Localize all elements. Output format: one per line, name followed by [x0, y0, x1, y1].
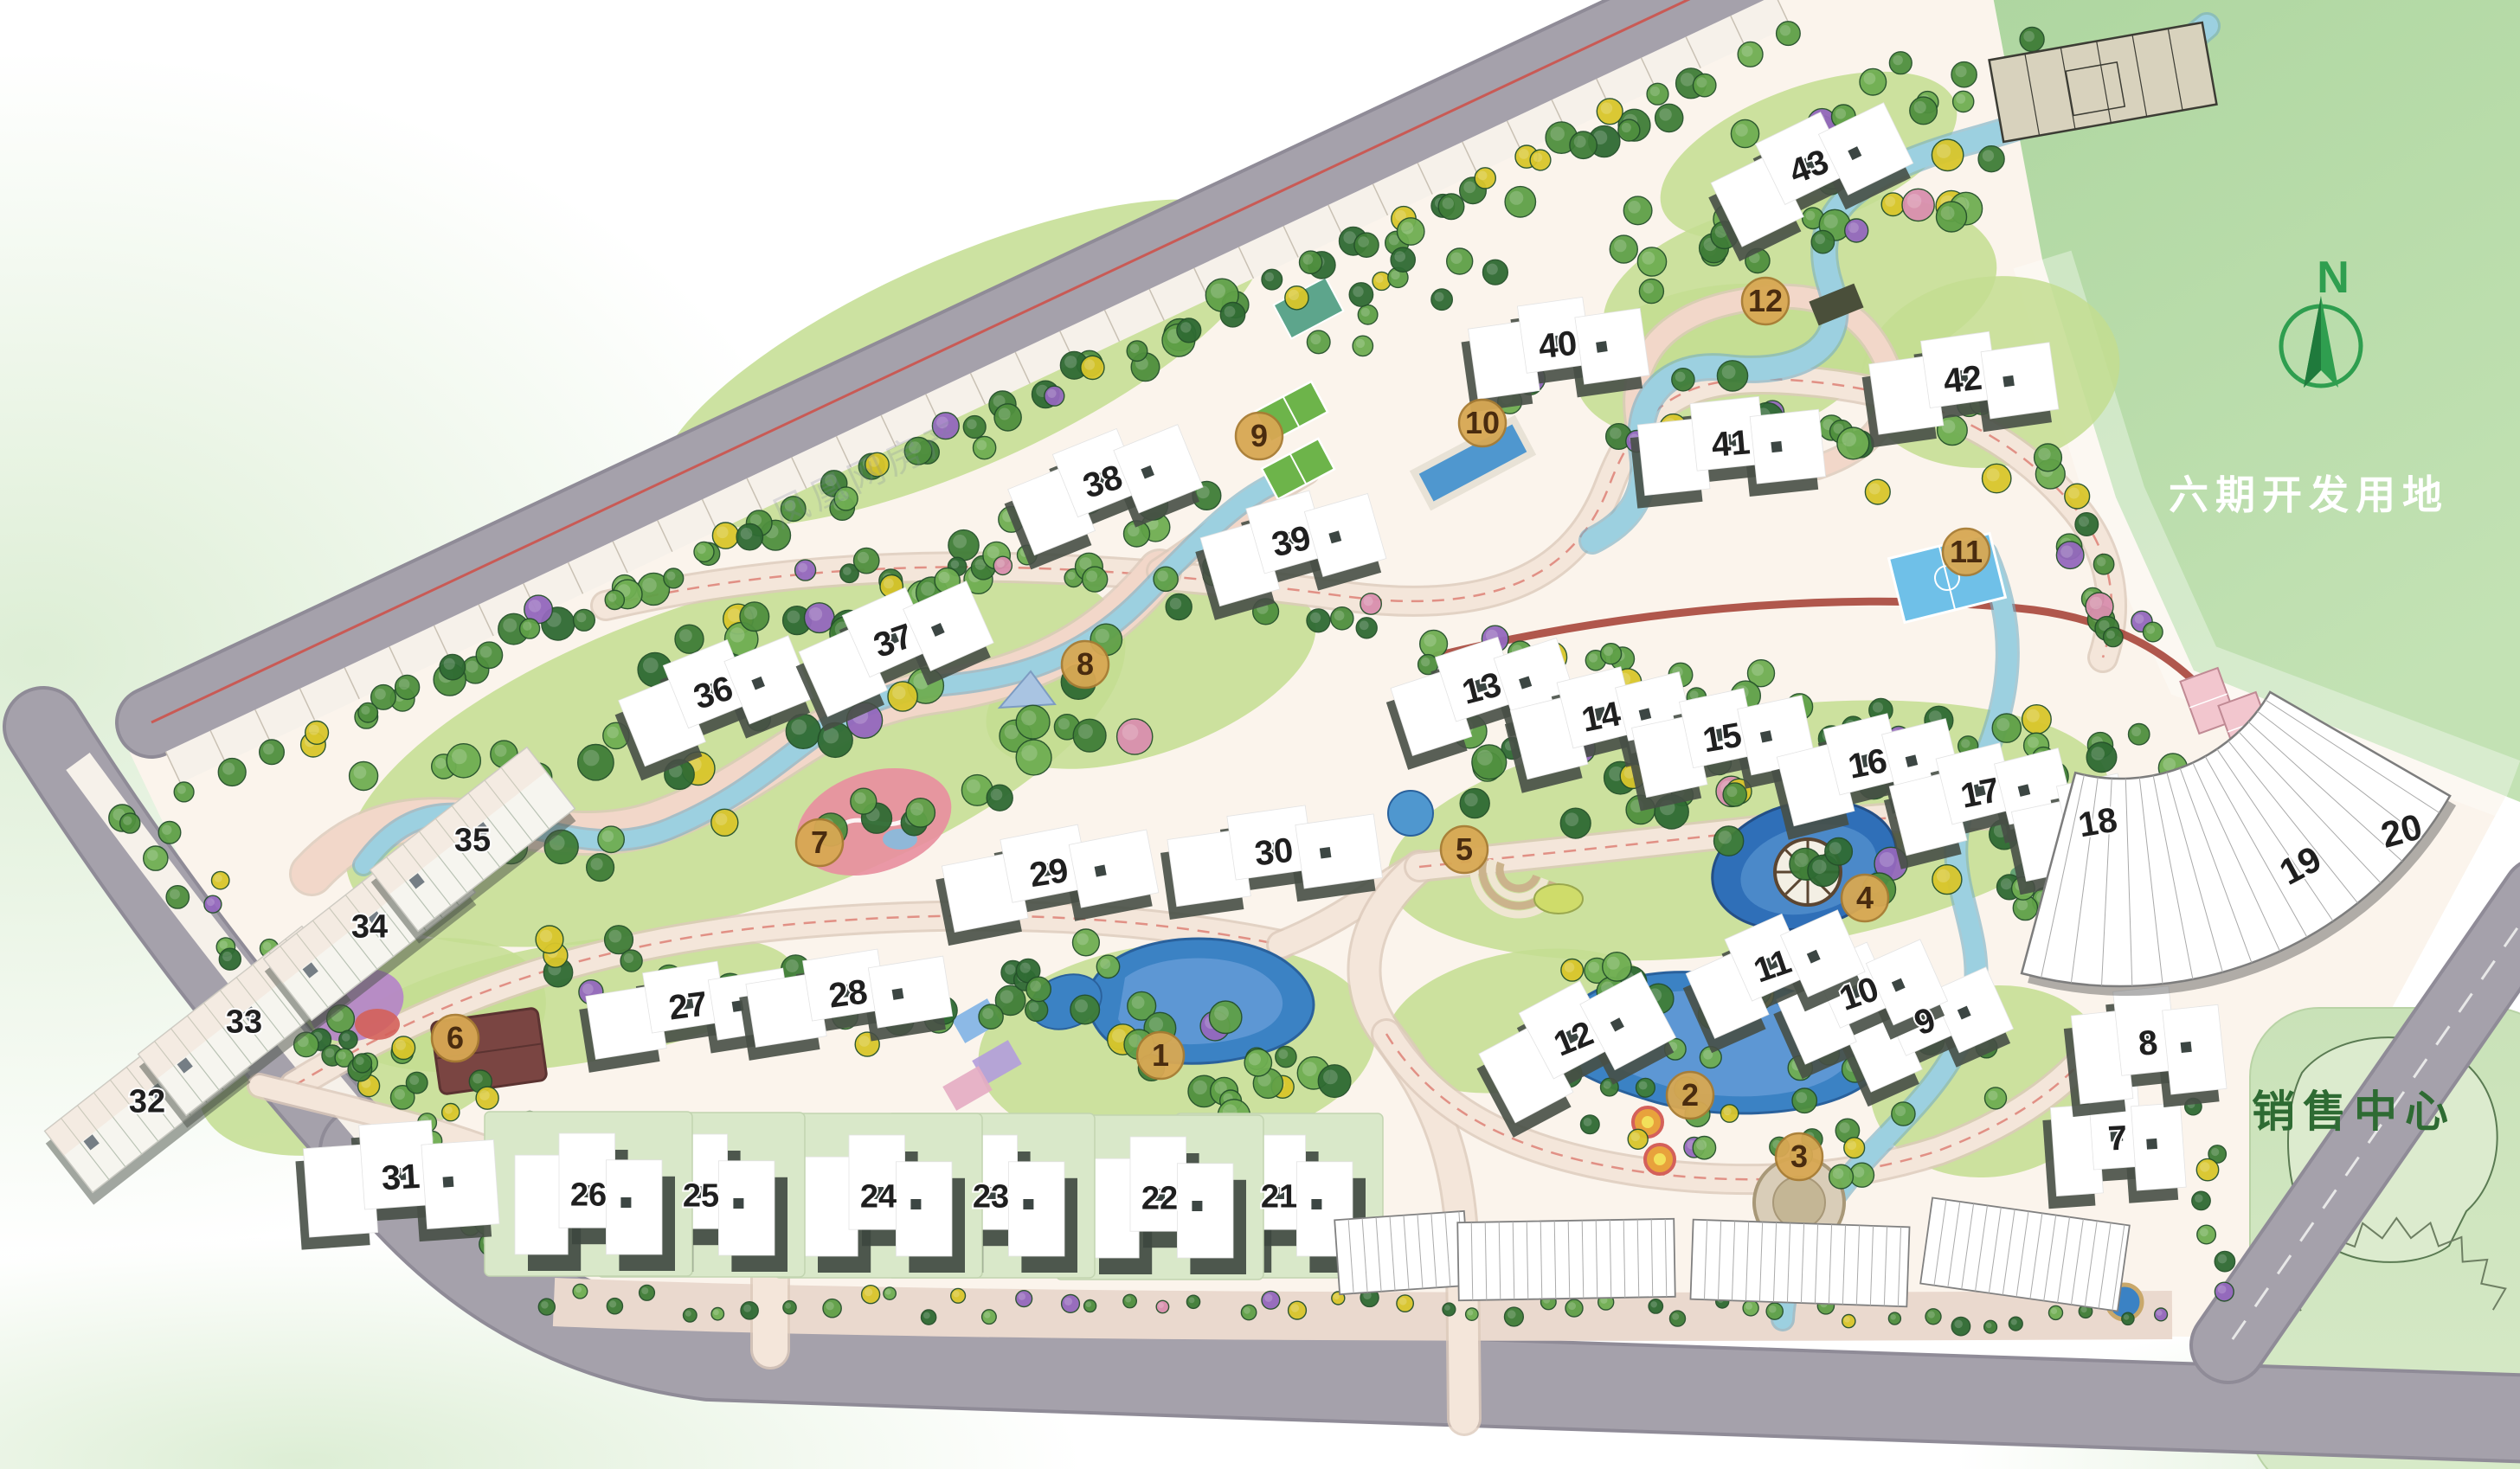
- tree-highlight: [643, 658, 659, 673]
- tree-highlight: [2200, 1162, 2209, 1171]
- amenity-marker-6: 6: [432, 1015, 479, 1062]
- tree-highlight: [591, 858, 603, 870]
- tree-highlight: [865, 1288, 872, 1296]
- tree-highlight: [892, 686, 905, 699]
- tree-highlight: [1424, 634, 1436, 646]
- marker-number: 2: [1681, 1077, 1699, 1113]
- commercial-body: [1690, 1220, 1909, 1307]
- tree-highlight: [356, 1056, 364, 1065]
- tree-highlight: [1360, 620, 1369, 630]
- tree-highlight: [1086, 1302, 1091, 1307]
- commercial-building: [1457, 1219, 1675, 1300]
- rooftop-core: [2146, 1139, 2157, 1150]
- marker-number: 11: [1950, 534, 1983, 569]
- tree-highlight: [2011, 1319, 2017, 1325]
- tree-highlight: [1029, 1002, 1039, 1012]
- tree-highlight: [1361, 308, 1370, 317]
- tree-highlight: [1835, 108, 1846, 119]
- tree-highlight: [1421, 658, 1430, 666]
- tree-highlight: [1610, 427, 1621, 439]
- tree-highlight: [1353, 286, 1363, 297]
- tree-highlight: [395, 1040, 406, 1050]
- amenity-marker-5: 5: [1441, 826, 1488, 873]
- tree-highlight: [1019, 1293, 1025, 1300]
- tree-highlight: [1983, 150, 1994, 161]
- tree-highlight: [1565, 812, 1579, 826]
- building-body: [1008, 1162, 1064, 1256]
- tree-highlight: [1149, 1017, 1163, 1031]
- tree-highlight: [582, 984, 594, 995]
- tree-highlight: [1249, 1053, 1261, 1065]
- site-plan: 7891011121314151617181920212223242526272…: [0, 0, 2520, 1469]
- tree-highlight: [1795, 853, 1809, 867]
- tree-highlight: [452, 749, 467, 765]
- tree-highlight: [435, 758, 447, 769]
- tree-highlight: [1588, 962, 1599, 973]
- marker-number: 8: [1077, 646, 1094, 682]
- tree-highlight: [1334, 1293, 1340, 1299]
- tree-highlight: [1000, 990, 1013, 1003]
- site-plan-svg: 7891011121314151617181920212223242526272…: [0, 0, 2520, 1469]
- tree-highlight: [1601, 102, 1612, 113]
- building-number-33: 33: [226, 1004, 262, 1040]
- tree-highlight: [1478, 171, 1488, 181]
- building-number-18: 18: [2076, 801, 2120, 845]
- tree-highlight: [1805, 211, 1815, 221]
- tree-highlight: [826, 1302, 834, 1311]
- tree-highlight: [1996, 718, 2009, 731]
- building-number-41: 41: [1710, 423, 1752, 465]
- tree-highlight: [263, 743, 274, 754]
- tree-highlight: [666, 572, 675, 581]
- tree-highlight: [1310, 613, 1321, 623]
- tree-highlight: [503, 619, 517, 632]
- tree-highlight: [2211, 1148, 2219, 1156]
- tree-highlight: [1956, 94, 1965, 104]
- tree-highlight: [982, 1008, 993, 1019]
- tree-highlight: [1533, 153, 1543, 163]
- tree-highlight: [786, 959, 799, 972]
- tree-highlight: [1672, 1313, 1679, 1320]
- tree-highlight: [1848, 222, 1859, 233]
- tree-highlight: [1565, 962, 1575, 972]
- tree-highlight: [361, 706, 370, 715]
- tree-highlight: [2028, 737, 2039, 748]
- building-number-32: 32: [129, 1083, 165, 1119]
- building-number-23: 23: [973, 1178, 1009, 1215]
- tree-highlight: [1356, 339, 1365, 348]
- tree-highlight: [1614, 240, 1626, 252]
- rooftop-core: [910, 1199, 921, 1209]
- tree-highlight: [697, 545, 705, 554]
- tree-highlight: [309, 725, 319, 735]
- tree-highlight: [624, 953, 633, 963]
- tree-highlight: [495, 745, 507, 757]
- tree-highlight: [1864, 73, 1876, 85]
- marker-number: 9: [1250, 418, 1268, 453]
- tree-highlight: [529, 600, 542, 613]
- tree-highlight: [1937, 869, 1950, 882]
- tree-highlight: [123, 816, 132, 824]
- commercial-body: [1334, 1211, 1469, 1294]
- tree-highlight: [1589, 653, 1597, 662]
- tree-highlight: [1844, 1317, 1850, 1323]
- tree-highlight: [583, 750, 600, 767]
- tree-highlight: [1507, 1310, 1516, 1318]
- tree-highlight: [1642, 252, 1655, 265]
- tree-highlight: [679, 629, 692, 642]
- marker-number: 6: [447, 1020, 464, 1055]
- tree-highlight: [967, 420, 977, 430]
- tree-highlight: [575, 1286, 582, 1293]
- tree-highlight: [1443, 197, 1454, 208]
- tree-highlight: [715, 813, 727, 825]
- tree-highlight: [1302, 1062, 1317, 1076]
- tree-highlight: [1450, 253, 1462, 264]
- rooftop-core: [1596, 341, 1608, 353]
- tree-highlight: [2135, 614, 2144, 624]
- rooftop-core: [1771, 441, 1782, 452]
- rooftop-core: [1760, 730, 1772, 742]
- tree-highlight: [1854, 1166, 1865, 1177]
- rooftop-core: [443, 1177, 454, 1188]
- rooftop-core: [733, 1198, 743, 1209]
- tree-highlight: [2091, 747, 2105, 760]
- building-body: [2163, 1004, 2227, 1094]
- tree-highlight: [1084, 359, 1095, 369]
- tree-highlight: [1399, 1298, 1407, 1305]
- tree-highlight: [1435, 292, 1444, 302]
- building-body: [718, 1161, 775, 1255]
- tree-highlight: [2027, 709, 2040, 722]
- tree-highlight: [602, 831, 614, 843]
- tree-highlight: [1928, 1312, 1935, 1318]
- tree-highlight: [2017, 900, 2028, 911]
- spa-pond: [1388, 791, 1433, 836]
- tree-highlight: [207, 898, 215, 906]
- tree-highlight: [222, 952, 232, 961]
- rooftop-core: [2002, 375, 2015, 388]
- tree-highlight: [910, 803, 923, 816]
- building-body: [896, 1162, 952, 1256]
- tree-highlight: [576, 613, 586, 622]
- tree-highlight: [1021, 745, 1037, 760]
- tree-highlight: [342, 1033, 350, 1042]
- tree-highlight: [1628, 201, 1641, 214]
- tree-highlight: [1444, 1305, 1450, 1311]
- amenity-marker-1: 1: [1137, 1032, 1184, 1079]
- tree-highlight: [222, 762, 235, 774]
- tree-highlight: [2218, 1254, 2227, 1264]
- tree-highlight: [472, 1074, 483, 1084]
- tree-highlight: [541, 1301, 549, 1309]
- tree-highlight: [1100, 959, 1110, 969]
- tree-highlight: [1193, 1081, 1207, 1094]
- tree-highlight: [1551, 126, 1565, 140]
- rooftop-core: [620, 1197, 631, 1208]
- tree-highlight: [1941, 206, 1955, 220]
- rooftop-core: [2181, 1042, 2192, 1053]
- tree-highlight: [2131, 727, 2141, 736]
- rooftop-core: [1192, 1201, 1202, 1211]
- tree-highlight: [1988, 1091, 1997, 1100]
- tree-highlight: [395, 1089, 405, 1100]
- tree-highlight: [1211, 284, 1225, 298]
- tree-highlight: [2200, 1228, 2208, 1236]
- tree-highlight: [2060, 546, 2073, 558]
- building-number-31: 31: [381, 1158, 421, 1197]
- kids-pool-center: [1642, 1116, 1654, 1128]
- tree-highlight: [1463, 182, 1475, 194]
- tree-highlight: [2051, 1308, 2057, 1314]
- tree-highlight: [1724, 1107, 1732, 1115]
- tree-highlight: [2001, 878, 2012, 889]
- building-number-27: 27: [666, 985, 710, 1027]
- building-number-24: 24: [860, 1178, 897, 1215]
- building-number-21: 21: [1261, 1178, 1297, 1215]
- tree-highlight: [1643, 283, 1655, 294]
- tree-highlight: [177, 786, 186, 794]
- tree-highlight: [1607, 957, 1620, 970]
- tree-highlight: [1005, 965, 1015, 975]
- tree-highlight: [2146, 625, 2155, 634]
- building-number-29: 29: [1027, 851, 1071, 895]
- tree-highlight: [791, 720, 807, 735]
- tree-highlight: [967, 779, 980, 793]
- building-body: [421, 1139, 499, 1228]
- tree-highlight: [1244, 1307, 1250, 1314]
- tree-highlight: [1158, 1302, 1164, 1308]
- tree-highlight: [1130, 344, 1140, 354]
- tree-highlight: [885, 1289, 891, 1295]
- tree-highlight: [1955, 66, 1966, 77]
- tree-highlight: [1568, 1302, 1576, 1310]
- marker-number: 5: [1456, 831, 1473, 867]
- tree-highlight: [685, 1311, 691, 1317]
- amenity-marker-7: 7: [796, 819, 843, 866]
- building-body: [1981, 343, 2059, 419]
- tree-highlight: [609, 1300, 616, 1307]
- tree-highlight: [1289, 290, 1299, 300]
- tree-highlight: [809, 607, 823, 621]
- tree-highlight: [1987, 468, 2000, 481]
- tree-highlight: [1064, 1298, 1072, 1305]
- tree-highlight: [1180, 322, 1191, 332]
- tree-highlight: [1157, 571, 1168, 582]
- tree-highlight: [540, 930, 552, 942]
- building-number-22: 22: [1141, 1180, 1178, 1216]
- tree-highlight: [1401, 222, 1413, 234]
- tree-highlight: [1122, 724, 1139, 741]
- tree-highlight: [1574, 136, 1586, 148]
- tree-highlight: [1265, 273, 1275, 282]
- tree-highlight: [1842, 433, 1856, 447]
- kids-pool-center: [1654, 1153, 1666, 1165]
- tree-highlight: [1824, 215, 1838, 228]
- tree-highlight: [1833, 1168, 1844, 1179]
- tree-highlight: [1030, 981, 1041, 992]
- tree-highlight: [1942, 420, 1956, 433]
- tree-highlight: [1622, 123, 1631, 132]
- tree-highlight: [1047, 389, 1056, 398]
- tree-highlight: [1303, 254, 1314, 265]
- tree-highlight: [1464, 793, 1477, 806]
- tree-highlight: [2081, 1306, 2087, 1312]
- tree-highlight: [1895, 1106, 1906, 1116]
- tree-highlight: [1742, 46, 1753, 57]
- tree-highlight: [609, 930, 622, 943]
- rooftop-core: [892, 988, 904, 1000]
- rooftop-core: [1311, 1199, 1321, 1209]
- tree-highlight: [953, 1291, 960, 1298]
- tree-highlight: [1604, 646, 1613, 656]
- tree-highlight: [1891, 1314, 1896, 1319]
- tree-highlight: [713, 1310, 719, 1316]
- tree-highlight: [2195, 1194, 2203, 1203]
- tree-highlight: [1058, 718, 1070, 729]
- tree-highlight: [996, 559, 1005, 568]
- tree-highlight: [728, 608, 742, 622]
- tree-highlight: [641, 1287, 648, 1294]
- building-number-7: 7: [2107, 1119, 2129, 1158]
- amenity-marker-8: 8: [1062, 641, 1109, 688]
- marker-number: 1: [1152, 1037, 1169, 1073]
- tree-highlight: [741, 528, 753, 540]
- tree-highlight: [858, 1036, 870, 1047]
- rooftop-core: [1095, 865, 1107, 877]
- tree-highlight: [1509, 191, 1523, 205]
- tree-highlight: [1907, 194, 1922, 208]
- tree-highlight: [444, 658, 455, 670]
- amenity-marker-11: 11: [1943, 529, 1990, 575]
- building-number-35: 35: [454, 822, 491, 858]
- tree-highlight: [1893, 55, 1903, 66]
- tree-highlight: [1796, 1092, 1807, 1103]
- tree-highlight: [523, 622, 531, 631]
- tree-highlight: [987, 546, 1000, 558]
- building-body: [2131, 1103, 2187, 1190]
- building-body: [1295, 814, 1383, 888]
- tree-highlight: [1769, 1305, 1777, 1313]
- tree-highlight: [1829, 842, 1842, 854]
- tree-highlight: [1189, 1298, 1195, 1304]
- tree-highlight: [921, 582, 935, 596]
- commercial-body: [1457, 1219, 1675, 1300]
- tree-highlight: [953, 535, 967, 548]
- building-number-42: 42: [1942, 359, 1984, 401]
- tree-highlight: [1986, 1323, 1992, 1329]
- tree-highlight: [1075, 999, 1088, 1012]
- amenity-marker-10: 10: [1459, 400, 1506, 446]
- tree-highlight: [1310, 334, 1321, 344]
- amenity-marker-9: 9: [1236, 413, 1282, 459]
- tree-highlight: [1394, 251, 1405, 262]
- tree-highlight: [743, 1305, 751, 1312]
- tree-highlight: [730, 627, 744, 642]
- tree-highlight: [938, 572, 949, 583]
- tree-highlight: [1752, 664, 1764, 676]
- tree-highlight: [479, 1090, 490, 1100]
- tree-highlight: [608, 593, 617, 602]
- tree-highlight: [147, 850, 158, 861]
- building-body: [1575, 308, 1649, 384]
- tree-highlight: [1847, 1140, 1856, 1150]
- building-number-15: 15: [1700, 716, 1745, 760]
- sales-center-label: 销售中心: [2252, 1087, 2456, 1136]
- tree-highlight: [2124, 1314, 2129, 1319]
- building-number-8: 8: [2137, 1023, 2159, 1063]
- tree-highlight: [1839, 1122, 1849, 1132]
- tree-highlight: [884, 579, 894, 589]
- tree-highlight: [1225, 306, 1236, 318]
- tree-highlight: [1391, 271, 1399, 279]
- tree-highlight: [1745, 1303, 1752, 1310]
- tree-highlight: [1719, 831, 1732, 844]
- tree-highlight: [1077, 933, 1089, 946]
- tree-highlight: [1375, 275, 1383, 283]
- tree-highlight: [858, 552, 869, 563]
- tree-highlight: [744, 606, 757, 619]
- tree-highlight: [325, 1049, 335, 1058]
- tree-highlight: [1659, 108, 1671, 120]
- tree-highlight: [1722, 365, 1736, 379]
- tree-highlight: [2023, 31, 2035, 42]
- tree-highlight: [1675, 372, 1686, 382]
- tree-highlight: [923, 1312, 930, 1319]
- tree-highlight: [1468, 1310, 1473, 1315]
- tree-highlight: [951, 561, 960, 569]
- tree-highlight: [1681, 73, 1694, 87]
- amenity-marker-12: 12: [1742, 278, 1789, 324]
- building-number-30: 30: [1253, 831, 1295, 874]
- tree-highlight: [2090, 597, 2102, 609]
- tree-highlight: [215, 875, 222, 882]
- tree-highlight: [1278, 1049, 1288, 1059]
- tree-highlight: [1170, 598, 1181, 609]
- commercial-building: [1690, 1220, 1909, 1307]
- amenity-marker-2: 2: [1667, 1072, 1713, 1119]
- tree-highlight: [1650, 87, 1660, 96]
- tree-highlight: [1954, 1320, 1963, 1329]
- tree-highlight: [1519, 149, 1529, 159]
- commercial-building: [1334, 1211, 1469, 1294]
- tree-highlight: [1815, 234, 1825, 244]
- building-number-25: 25: [683, 1177, 719, 1214]
- tree-highlight: [263, 942, 272, 951]
- tree-highlight: [445, 1107, 453, 1114]
- tree-highlight: [219, 940, 228, 949]
- tree-highlight: [1885, 196, 1895, 207]
- tree-highlight: [337, 1051, 346, 1060]
- amenity-marker-4: 4: [1842, 875, 1888, 921]
- tree-highlight: [1631, 1132, 1640, 1141]
- building-number-16: 16: [1845, 741, 1890, 786]
- tree-highlight: [375, 689, 386, 700]
- tree-highlight: [1477, 750, 1493, 766]
- building-body: [606, 1160, 662, 1254]
- tree-highlight: [1880, 852, 1894, 867]
- tree-highlight: [1696, 1139, 1707, 1150]
- tree-highlight: [409, 1075, 419, 1085]
- tree-highlight: [1639, 1081, 1648, 1090]
- building-number-17: 17: [1957, 771, 2002, 816]
- tree-highlight: [1812, 860, 1826, 874]
- tree-highlight: [1020, 963, 1031, 973]
- marker-number: 12: [1748, 283, 1783, 318]
- tree-highlight: [480, 646, 492, 658]
- tree-highlight: [642, 578, 657, 593]
- marker-number: 10: [1465, 405, 1500, 440]
